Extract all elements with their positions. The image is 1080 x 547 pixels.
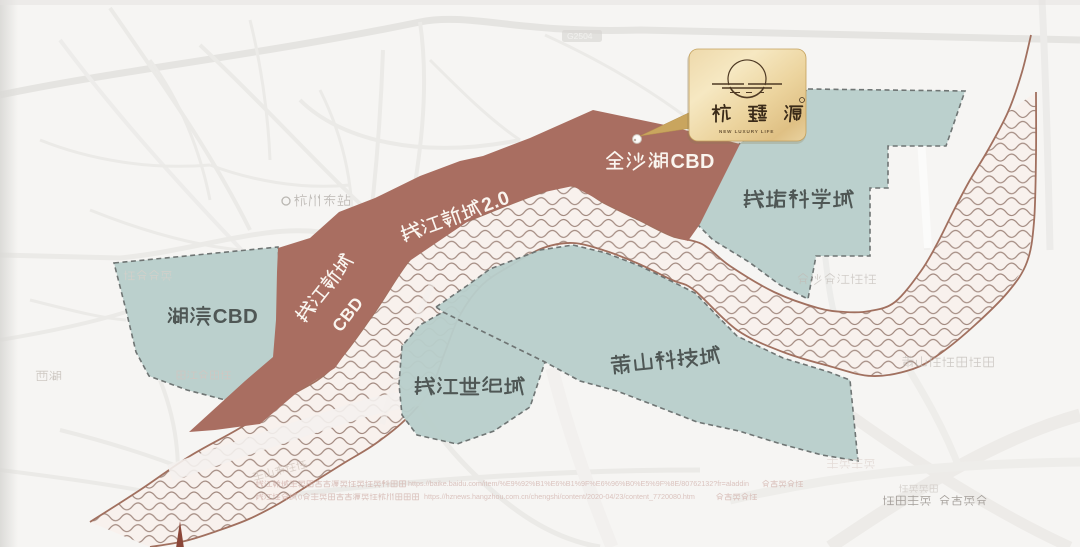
svg-text:0: 0 — [298, 492, 302, 501]
svg-text:CBD: CBD — [213, 306, 258, 328]
svg-text:G2504: G2504 — [567, 31, 593, 41]
svg-text:https.//hznews.hangzhou.com.cn: https.//hznews.hangzhou.com.cn/chengshi/… — [424, 492, 695, 501]
svg-text:CBD: CBD — [671, 151, 715, 173]
svg-text:https.//baike.baidu.com/item/%: https.//baike.baidu.com/item/%E9%92%B1%E… — [408, 479, 749, 488]
svg-text:NEW LUXURY LIFE: NEW LUXURY LIFE — [719, 129, 774, 134]
